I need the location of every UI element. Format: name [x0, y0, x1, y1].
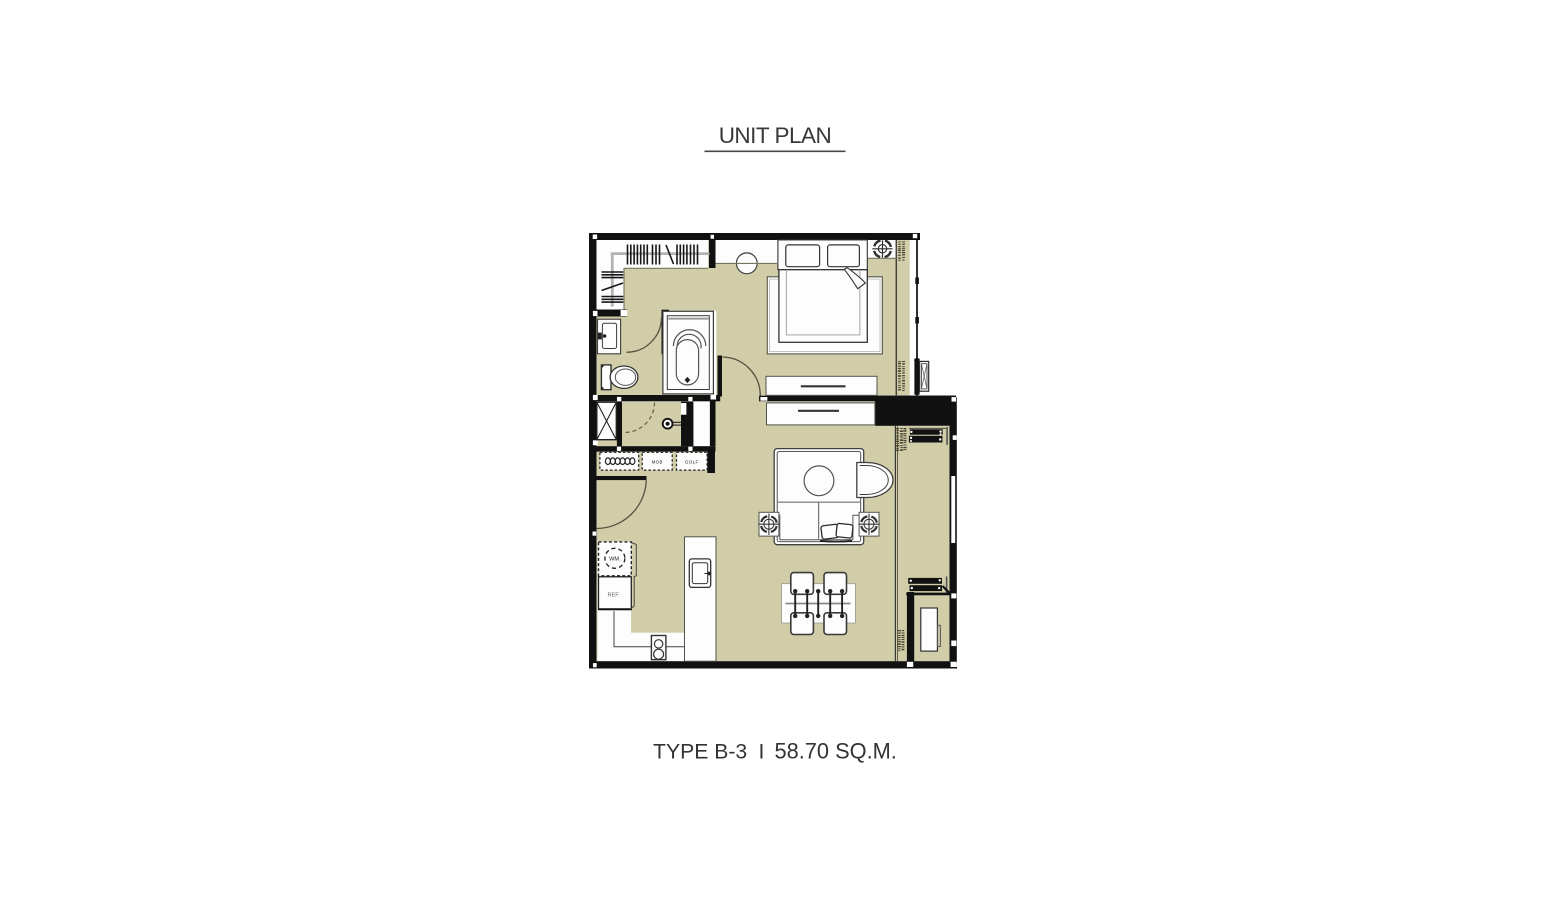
- svg-text:MOB: MOB: [652, 459, 663, 464]
- svg-text:I: I: [759, 741, 765, 764]
- svg-text:UNIT PLAN: UNIT PLAN: [719, 123, 832, 148]
- svg-text:REF.: REF.: [607, 593, 620, 599]
- svg-text:WM.: WM.: [609, 557, 621, 563]
- svg-text:TYPE B-3: TYPE B-3: [653, 741, 747, 764]
- svg-text:58.70 SQ.M.: 58.70 SQ.M.: [775, 739, 897, 764]
- svg-text:GOLF: GOLF: [685, 459, 699, 464]
